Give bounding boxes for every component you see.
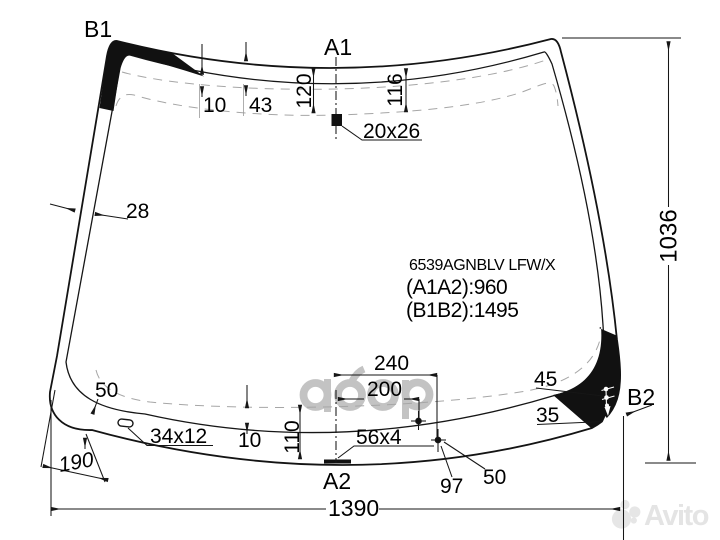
svg-text:28: 28 bbox=[126, 200, 149, 223]
svg-text:20x26: 20x26 bbox=[363, 120, 420, 143]
svg-text:116: 116 bbox=[384, 73, 407, 106]
svg-text:190: 190 bbox=[57, 448, 96, 477]
svg-text:(A1A2):960: (A1A2):960 bbox=[406, 276, 507, 299]
svg-text:97: 97 bbox=[440, 475, 463, 498]
svg-text:56x4: 56x4 bbox=[356, 426, 402, 449]
svg-text:A1: A1 bbox=[324, 34, 352, 60]
svg-text:A2: A2 bbox=[323, 468, 351, 494]
svg-text:200: 200 bbox=[367, 378, 402, 401]
svg-text:(B1B2):1495: (B1B2):1495 bbox=[406, 299, 518, 322]
svg-text:Avito: Avito bbox=[644, 500, 709, 532]
svg-text:1036: 1036 bbox=[656, 209, 683, 262]
svg-text:B2: B2 bbox=[627, 384, 655, 410]
svg-text:50: 50 bbox=[95, 379, 118, 402]
svg-text:10: 10 bbox=[203, 94, 226, 117]
svg-text:50: 50 bbox=[483, 466, 506, 489]
svg-text:45: 45 bbox=[534, 368, 557, 391]
svg-text:110: 110 bbox=[281, 420, 304, 453]
svg-text:B1: B1 bbox=[84, 16, 112, 42]
svg-text:43: 43 bbox=[249, 94, 272, 117]
svg-text:120: 120 bbox=[293, 73, 316, 108]
svg-text:6539AGNBLV LFW/X: 6539AGNBLV LFW/X bbox=[409, 257, 556, 274]
svg-text:34x12: 34x12 bbox=[150, 425, 207, 448]
svg-text:240: 240 bbox=[374, 352, 409, 375]
svg-text:10: 10 bbox=[238, 429, 261, 452]
svg-text:1390: 1390 bbox=[328, 495, 379, 521]
